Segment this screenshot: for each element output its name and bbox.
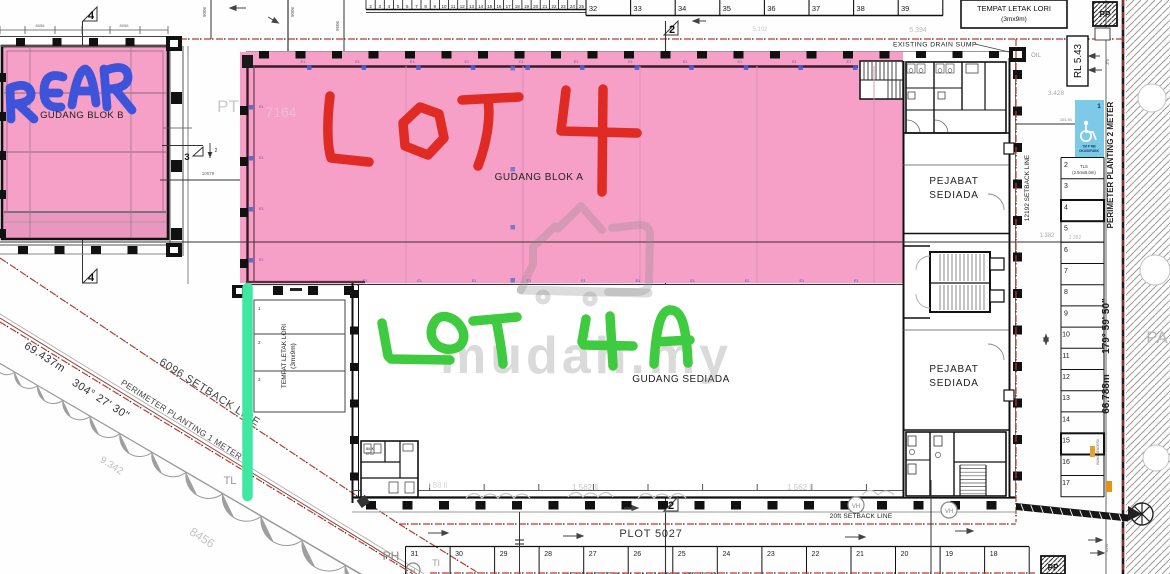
svg-text:21: 21 [542, 4, 548, 9]
svg-text:32: 32 [589, 4, 597, 13]
svg-text:4: 4 [88, 10, 95, 22]
svg-text:19: 19 [945, 551, 953, 558]
svg-text:22: 22 [812, 551, 820, 558]
svg-text:E1: E1 [847, 60, 852, 64]
svg-text:E1: E1 [472, 279, 477, 283]
svg-text:PT: PT [217, 97, 239, 116]
svg-text:17: 17 [1062, 480, 1070, 487]
svg-text:EXISTING DRAIN SUMP: EXISTING DRAIN SUMP [893, 42, 977, 49]
svg-text:PA: PA [1146, 328, 1168, 347]
svg-text:E1: E1 [799, 279, 804, 283]
svg-text:PERIMETER PLANTING 2 METER: PERIMETER PLANTING 2 METER [1106, 101, 1115, 228]
svg-text:16: 16 [496, 4, 502, 9]
svg-text:13: 13 [469, 4, 475, 9]
svg-text:3: 3 [184, 152, 189, 163]
svg-text:101.91: 101.91 [1060, 117, 1073, 122]
svg-text:E1: E1 [628, 60, 633, 64]
svg-text:SEDIADA: SEDIADA [929, 190, 979, 201]
svg-text:19: 19 [524, 4, 530, 9]
svg-text:5: 5 [1064, 226, 1068, 233]
svg-text:15: 15 [487, 4, 493, 9]
svg-text:E1: E1 [259, 258, 264, 262]
svg-text:E1: E1 [259, 105, 264, 109]
svg-text:25: 25 [579, 4, 585, 9]
svg-text:179° 59' 50": 179° 59' 50" [1101, 298, 1112, 354]
svg-text:12: 12 [1062, 374, 1070, 381]
svg-text:Tl: Tl [432, 558, 440, 568]
svg-text:33: 33 [633, 4, 641, 13]
svg-text:3.428: 3.428 [1048, 90, 1065, 97]
svg-text:4 J70: 4 J70 [1105, 544, 1109, 553]
svg-text:TEMPAT LETAK LORI: TEMPAT LETAK LORI [281, 324, 288, 388]
svg-text:38: 38 [856, 4, 864, 13]
svg-text:2: 2 [669, 24, 675, 36]
svg-text:11: 11 [1062, 353, 1069, 360]
svg-text:H: H [411, 569, 415, 574]
svg-text:E1: E1 [417, 279, 422, 283]
svg-text:28: 28 [544, 551, 552, 558]
svg-text:10: 10 [441, 4, 447, 9]
svg-text:27: 27 [589, 551, 597, 558]
svg-text:TEMPAT LETAK LORI: TEMPAT LETAK LORI [977, 4, 1051, 13]
svg-text:12192 SETBACK LINE: 12192 SETBACK LINE [1024, 154, 1031, 221]
svg-text:PP: PP [1100, 10, 1111, 19]
svg-text:39: 39 [901, 4, 909, 13]
svg-text:8056: 8056 [36, 23, 46, 28]
svg-text:E1: E1 [636, 279, 641, 283]
svg-text:21: 21 [856, 551, 864, 558]
svg-text:4: 4 [1064, 204, 1068, 211]
svg-text:E1: E1 [581, 279, 586, 283]
svg-text:26: 26 [633, 551, 641, 558]
svg-text:2: 2 [215, 148, 218, 154]
svg-text:E1: E1 [355, 60, 360, 64]
svg-text:18: 18 [990, 551, 998, 558]
svg-text:BILIK: BILIK [366, 447, 375, 451]
svg-text:9506: 9506 [335, 20, 340, 31]
svg-text:GUDANG BLOK A: GUDANG BLOK A [495, 172, 584, 183]
svg-text:5.394: 5.394 [909, 27, 927, 34]
svg-text:E1: E1 [519, 60, 524, 64]
svg-text:8: 8 [1064, 289, 1068, 296]
svg-text:20ft SETBACK LINE: 20ft SETBACK LINE [830, 513, 893, 520]
svg-text:35: 35 [723, 4, 731, 13]
svg-text:GUDANG BLOK B: GUDANG BLOK B [40, 110, 124, 121]
svg-text:PEJABAT: PEJABAT [929, 364, 978, 375]
svg-text:31: 31 [411, 551, 419, 558]
svg-text:20: 20 [901, 551, 909, 558]
svg-text:8056: 8056 [120, 23, 130, 28]
svg-text:4: 4 [88, 272, 95, 284]
svg-text:SEDIADA: SEDIADA [929, 378, 979, 389]
svg-text:(3mx9m): (3mx9m) [290, 343, 297, 369]
svg-text:1: 1 [1097, 103, 1101, 110]
svg-text:2: 2 [1064, 162, 1068, 169]
svg-text:3: 3 [1064, 183, 1068, 190]
svg-text:9: 9 [1064, 310, 1068, 317]
svg-text:25: 25 [678, 551, 686, 558]
svg-text:1 562 ll: 1 562 ll [787, 483, 813, 492]
svg-text:18: 18 [515, 4, 521, 9]
svg-text:VH: VH [852, 504, 860, 510]
svg-text:WANG BENDERA: WANG BENDERA [1096, 438, 1100, 465]
svg-text:10: 10 [1062, 332, 1070, 339]
svg-text:J70: J70 [1106, 59, 1110, 65]
svg-text:VH: VH [945, 509, 953, 515]
svg-text:E1: E1 [737, 60, 742, 64]
svg-text:E1: E1 [854, 279, 859, 283]
svg-text:30: 30 [455, 551, 463, 558]
svg-text:6: 6 [1064, 247, 1068, 254]
svg-text:PH: PH [383, 549, 400, 563]
svg-text:E1: E1 [410, 60, 415, 64]
svg-text:13: 13 [1062, 395, 1070, 402]
svg-text:E1: E1 [792, 60, 797, 64]
svg-text:7: 7 [1064, 268, 1068, 275]
svg-text:OKU/DIFABK: OKU/DIFABK [1079, 149, 1100, 153]
svg-text:5.102: 5.102 [752, 27, 768, 33]
svg-text:OIL: OIL [1031, 53, 1041, 59]
svg-text:34: 34 [678, 4, 686, 13]
svg-text:20: 20 [533, 4, 539, 9]
svg-text:1 562 ll: 1 562 ll [572, 483, 598, 492]
svg-text:14: 14 [1062, 416, 1070, 423]
svg-text:37: 37 [812, 4, 820, 13]
svg-text:E1: E1 [259, 156, 264, 160]
svg-text:23: 23 [561, 4, 567, 9]
svg-text:E1: E1 [745, 279, 750, 283]
svg-text:TLS: TLS [1080, 164, 1088, 169]
svg-text:TM P MB: TM P MB [1082, 145, 1096, 149]
svg-text:16: 16 [1062, 459, 1070, 466]
svg-text:12: 12 [460, 4, 466, 9]
svg-text:(3mx9m): (3mx9m) [1001, 16, 1027, 23]
svg-text:E1: E1 [464, 60, 469, 64]
svg-text:PLOT 5027: PLOT 5027 [619, 528, 682, 540]
svg-text:22: 22 [551, 4, 557, 9]
svg-text:14: 14 [478, 4, 484, 9]
svg-text:66.788m: 66.788m [1101, 374, 1112, 414]
svg-text:E1: E1 [259, 207, 264, 211]
svg-text:E1: E1 [301, 60, 306, 64]
svg-text:7164: 7164 [265, 104, 296, 120]
svg-text:E1: E1 [690, 279, 695, 283]
svg-text:24: 24 [570, 4, 576, 9]
svg-text:9006: 9006 [290, 6, 295, 17]
svg-text:10078: 10078 [202, 171, 215, 176]
svg-text:TL: TL [224, 475, 237, 487]
svg-text:RL 5.43: RL 5.43 [1073, 43, 1084, 78]
svg-text:PP: PP [1048, 563, 1059, 572]
svg-text:1 382: 1 382 [1069, 235, 1082, 241]
svg-text:PEJABAT: PEJABAT [929, 176, 978, 187]
svg-text:l 88 ll: l 88 ll [429, 481, 448, 490]
svg-text:29: 29 [500, 551, 508, 558]
svg-text:23: 23 [767, 551, 775, 558]
svg-text:(2.5mx5.0m): (2.5mx5.0m) [1072, 170, 1096, 175]
svg-text:9006: 9006 [202, 6, 207, 17]
svg-text:15: 15 [1062, 438, 1070, 445]
svg-text:24: 24 [722, 551, 730, 558]
svg-text:E1: E1 [574, 60, 579, 64]
svg-text:2: 2 [668, 500, 674, 512]
svg-text:1.382: 1.382 [1039, 233, 1055, 239]
svg-text:E1: E1 [683, 60, 688, 64]
svg-text:11: 11 [451, 4, 456, 9]
svg-text:STOR: STOR [366, 452, 375, 456]
svg-text:17: 17 [506, 4, 512, 9]
svg-text:36: 36 [767, 4, 775, 13]
